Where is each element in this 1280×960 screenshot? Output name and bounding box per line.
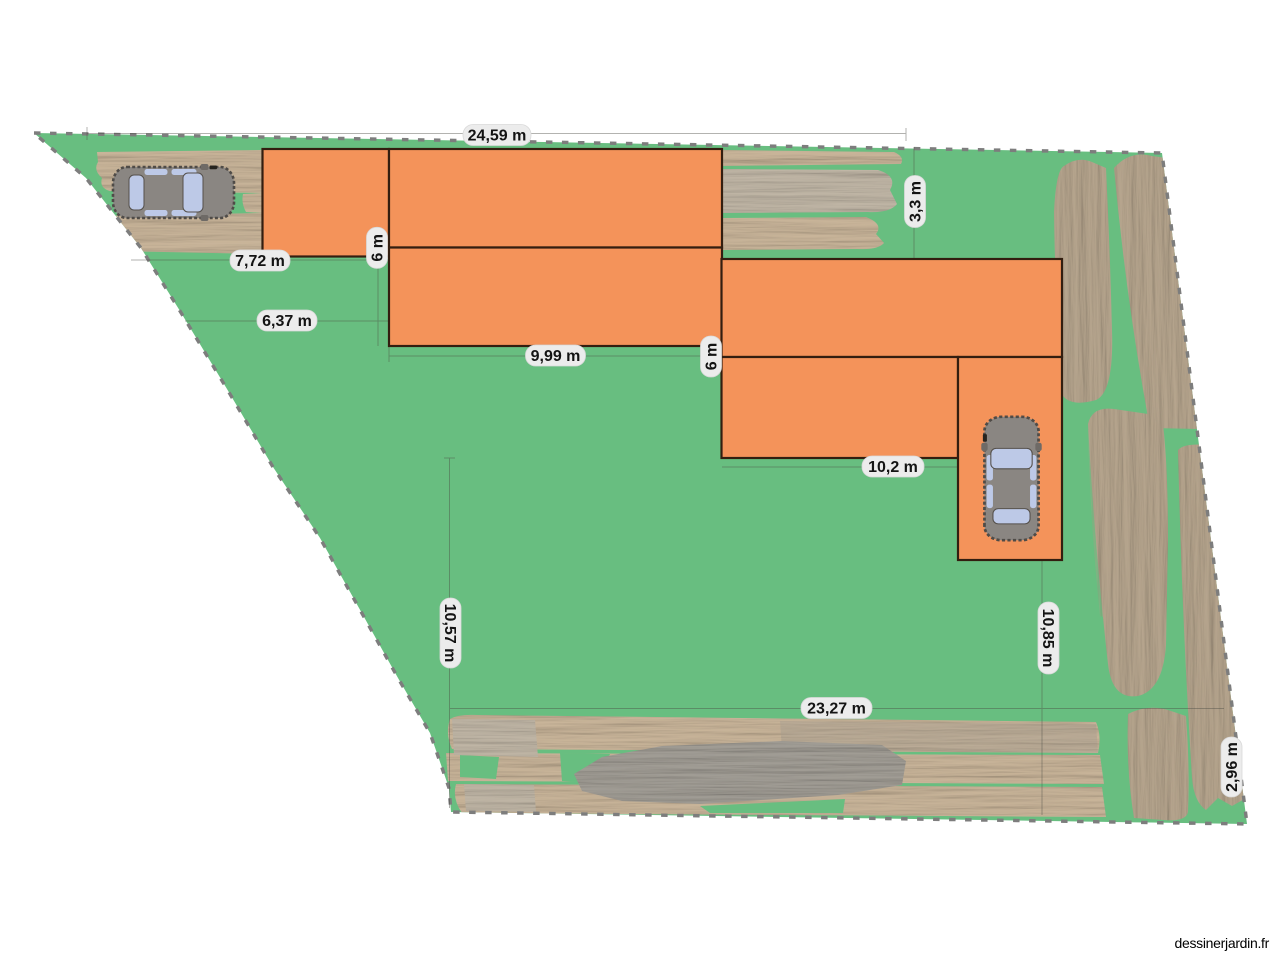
- svg-text:10,85 m: 10,85 m: [1039, 609, 1056, 668]
- svg-text:6,37 m: 6,37 m: [262, 313, 312, 330]
- svg-text:9,99 m: 9,99 m: [531, 348, 581, 365]
- svg-text:2,96 m: 2,96 m: [1224, 742, 1241, 792]
- svg-text:dessinerjardin.fr: dessinerjardin.fr: [1175, 935, 1270, 951]
- svg-text:24,59 m: 24,59 m: [468, 128, 527, 145]
- svg-text:6 m: 6 m: [370, 234, 387, 262]
- svg-text:23,27 m: 23,27 m: [807, 701, 866, 718]
- svg-text:10,2 m: 10,2 m: [868, 459, 918, 476]
- svg-text:3,3 m: 3,3 m: [908, 181, 925, 222]
- svg-text:6 m: 6 m: [704, 343, 721, 371]
- svg-text:7,72 m: 7,72 m: [235, 253, 285, 270]
- svg-text:10,57 m: 10,57 m: [441, 604, 458, 663]
